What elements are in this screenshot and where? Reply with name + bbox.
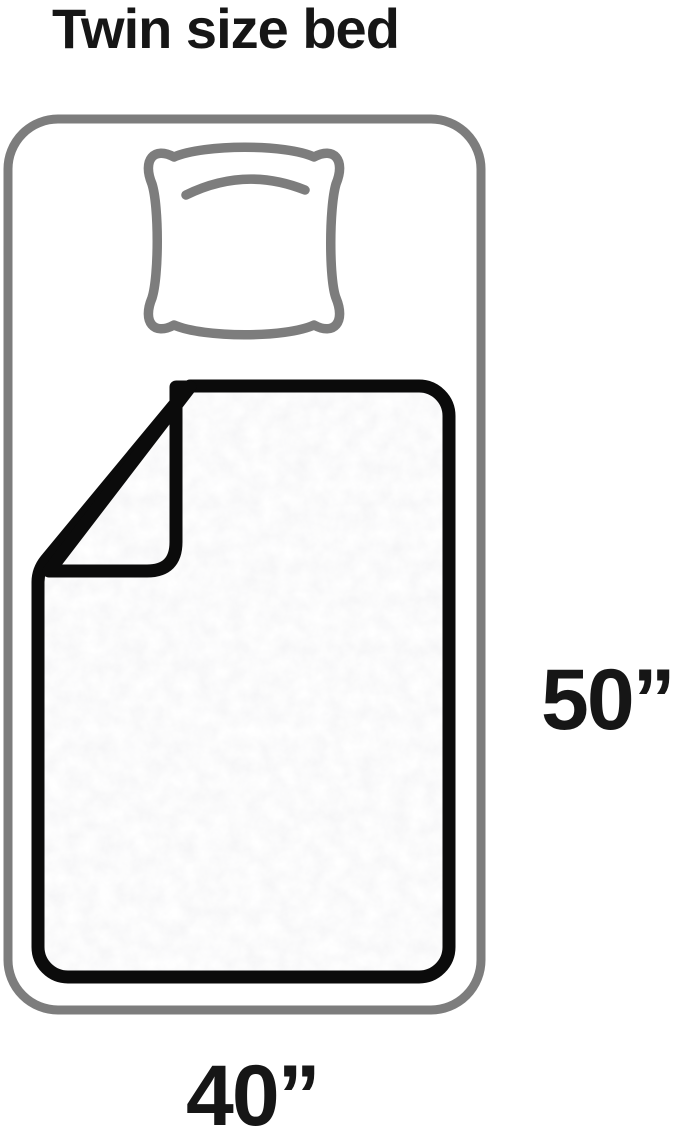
bed-diagram-graphic bbox=[0, 0, 679, 1129]
pillow-icon bbox=[148, 147, 339, 335]
product-dimension-diagram: Twin size bed bbox=[0, 0, 679, 1129]
width-dimension-label: 40” bbox=[186, 1053, 319, 1129]
height-dimension-label: 50” bbox=[541, 657, 674, 743]
